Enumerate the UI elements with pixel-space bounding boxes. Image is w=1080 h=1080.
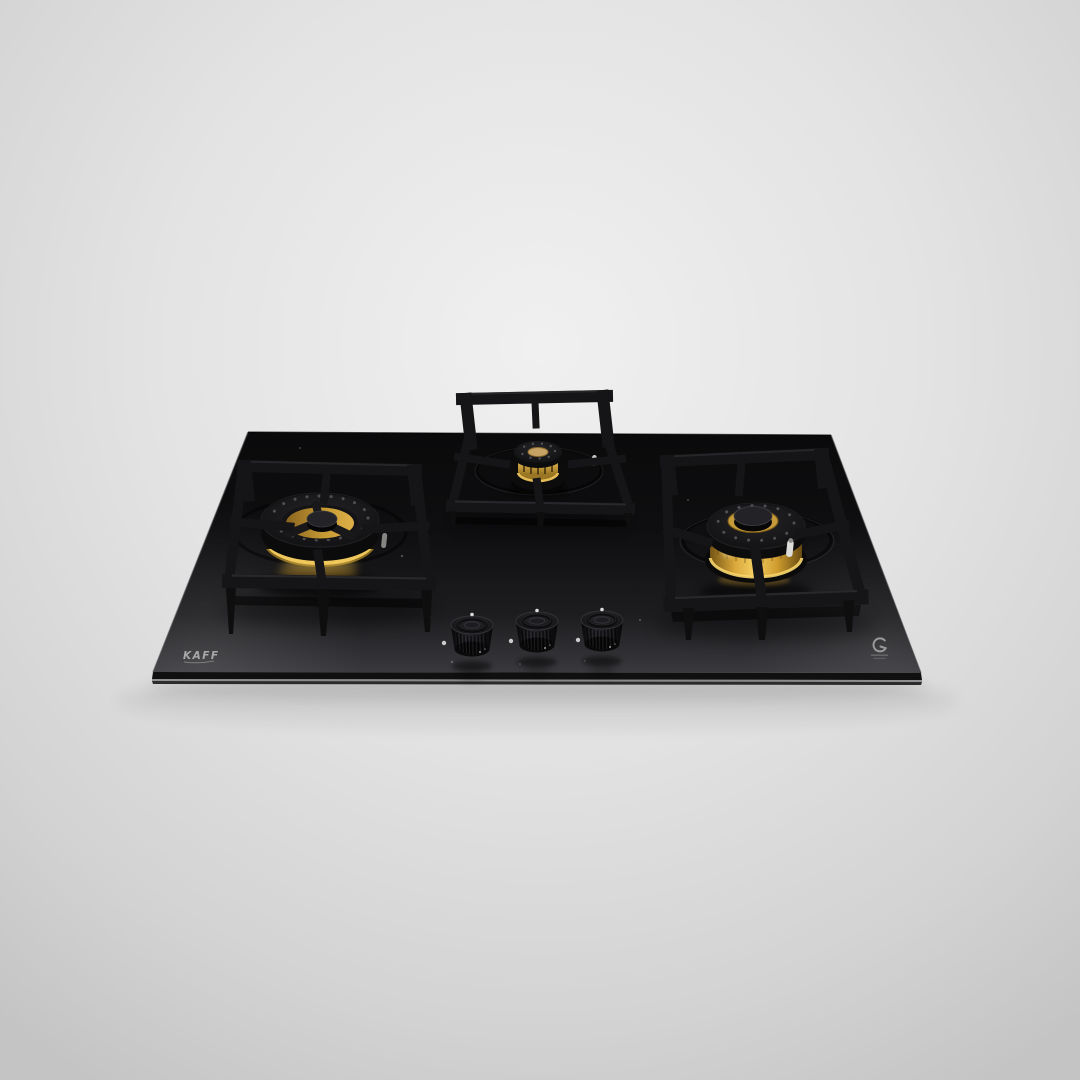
control-knobs xyxy=(442,608,623,682)
gas-hob-product-photo: KAFF xyxy=(0,0,1080,1080)
burner-cap-right xyxy=(734,507,772,526)
burner-cap-left xyxy=(307,511,337,527)
burner-cap-middle xyxy=(528,448,548,457)
product-photo-stage: KAFF xyxy=(0,0,1080,1080)
glass-marking-dot-2 xyxy=(509,639,513,643)
brand-logo: KAFF xyxy=(183,650,220,663)
brand-logo-text: KAFF xyxy=(183,650,220,662)
glass-marking-dot-3 xyxy=(576,638,580,642)
glass-marking-dot-1 xyxy=(442,641,446,645)
